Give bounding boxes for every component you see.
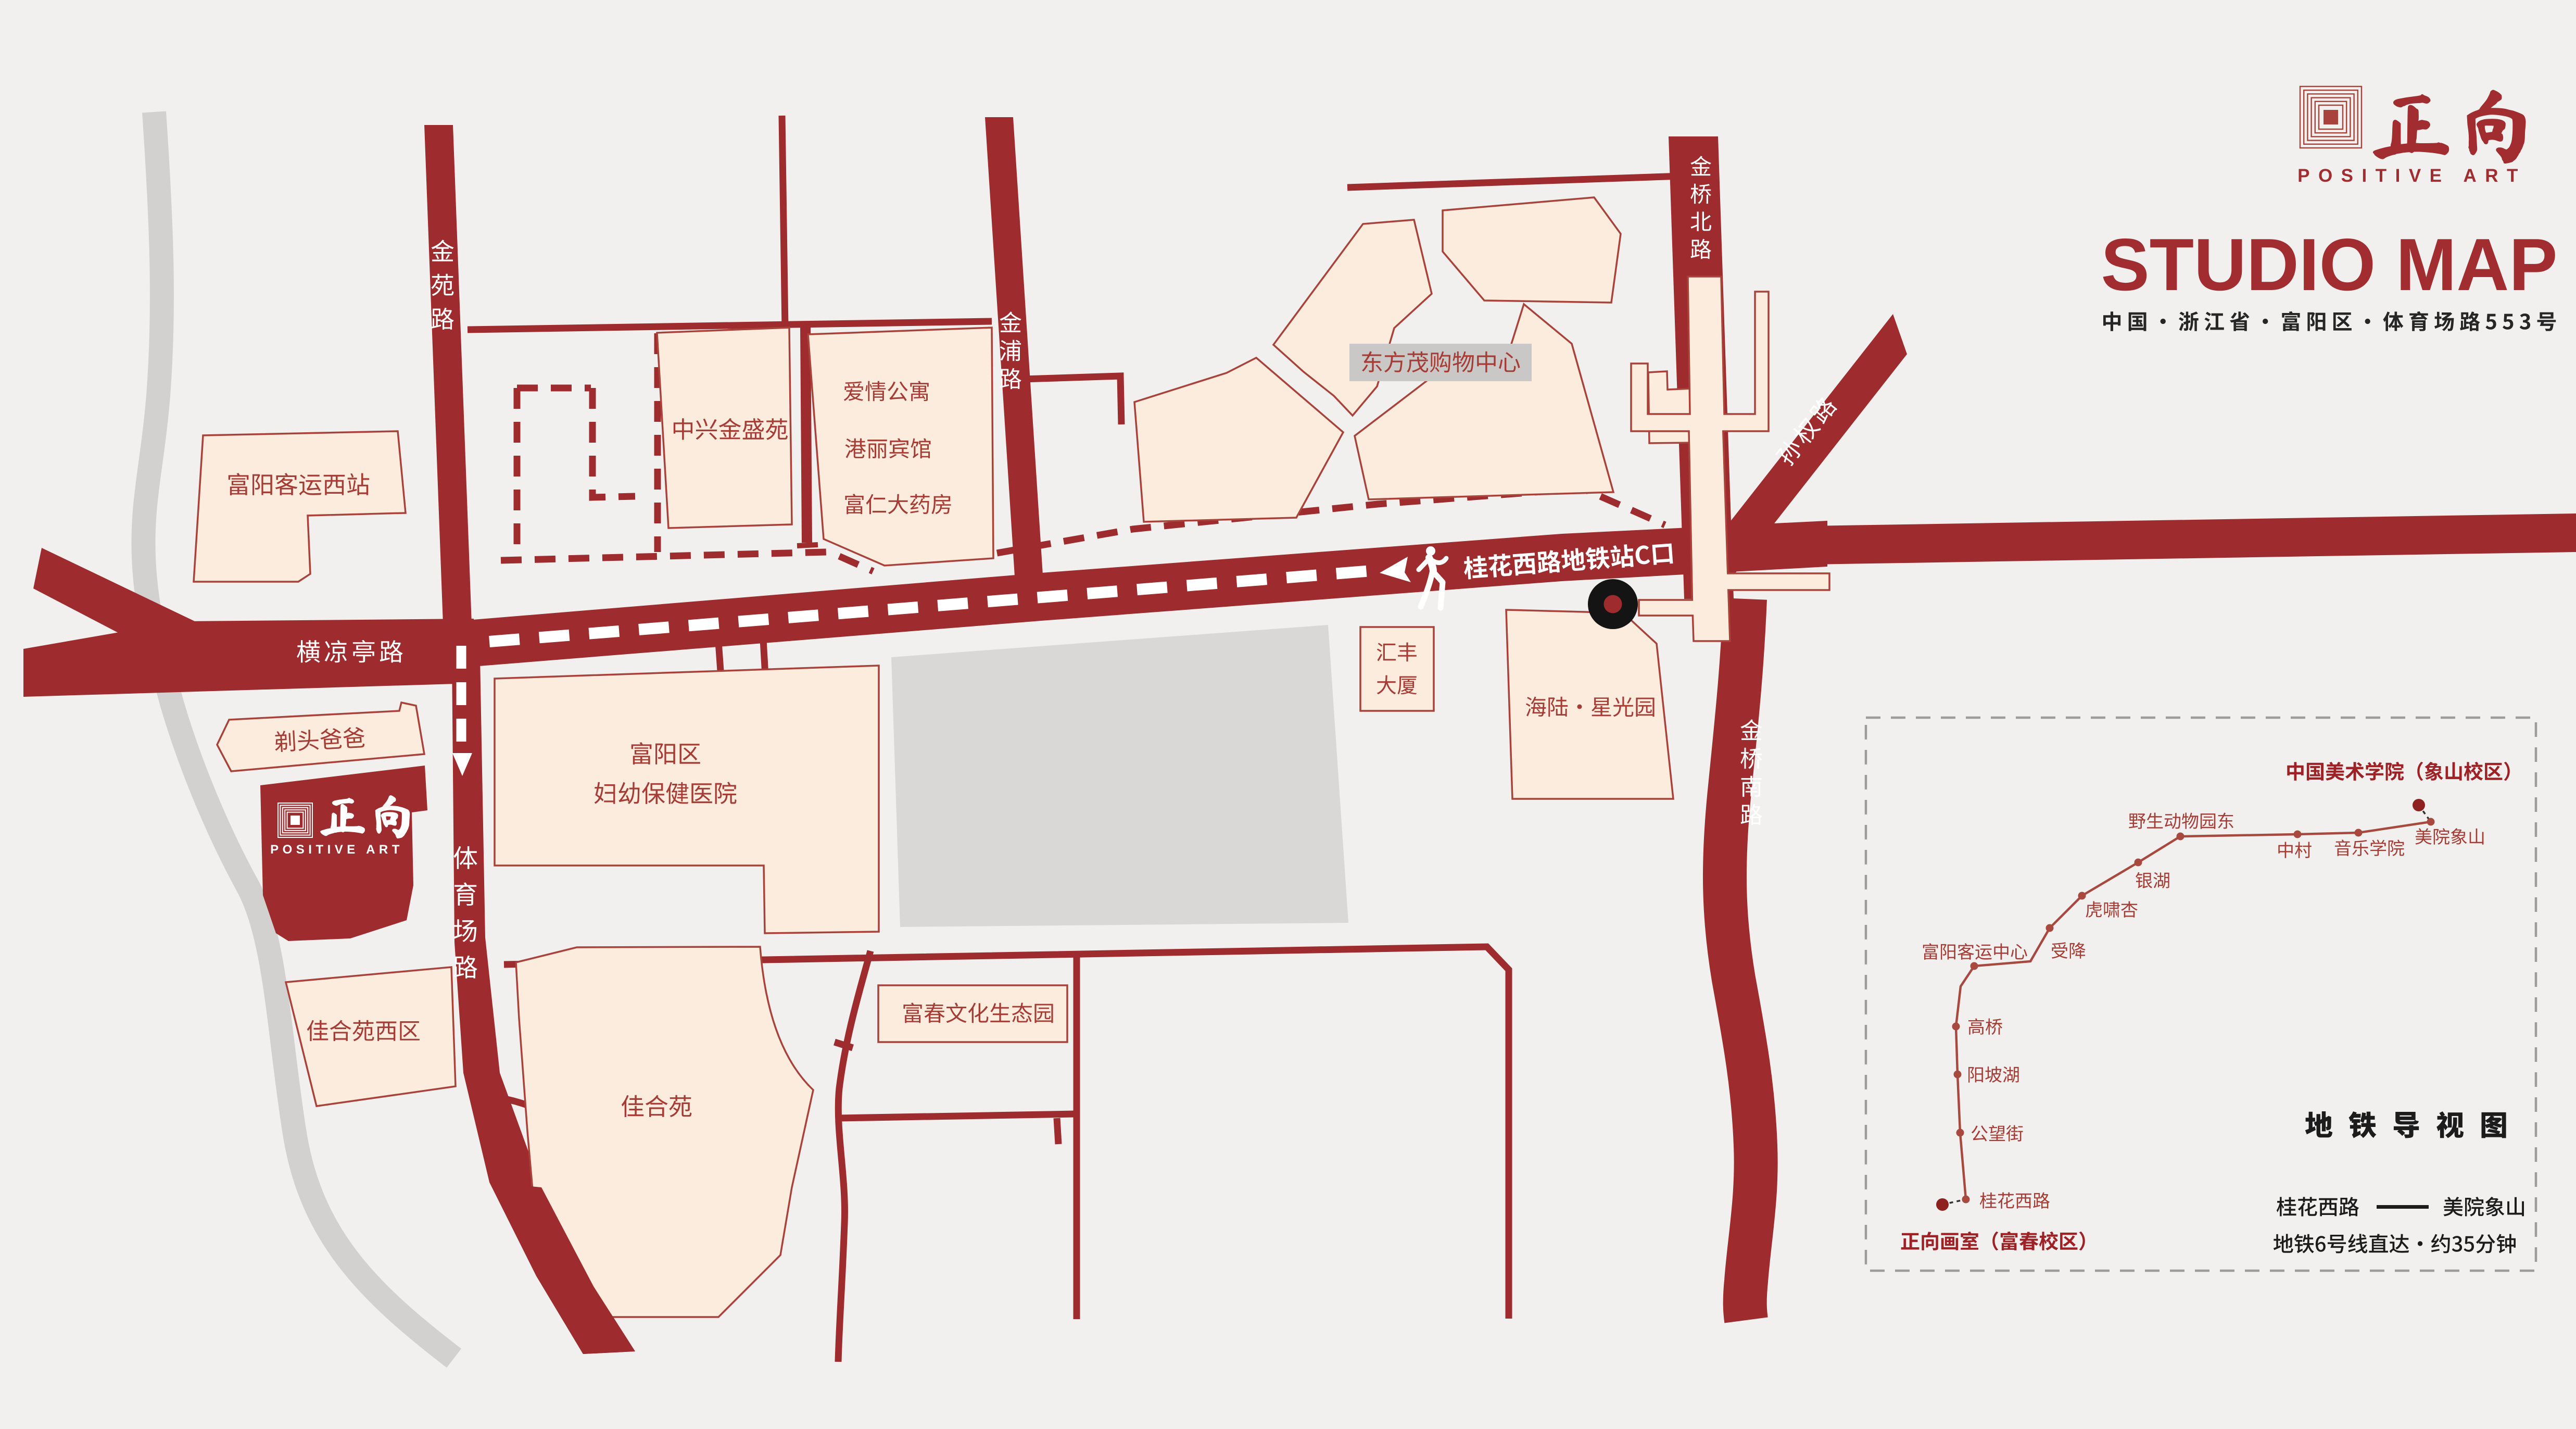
svg-text:POSITIVE ART: POSITIVE ART xyxy=(270,843,403,857)
svg-text:POSITIVE ART: POSITIVE ART xyxy=(2297,166,2527,186)
svg-text:STUDIO MAP: STUDIO MAP xyxy=(2101,223,2558,306)
